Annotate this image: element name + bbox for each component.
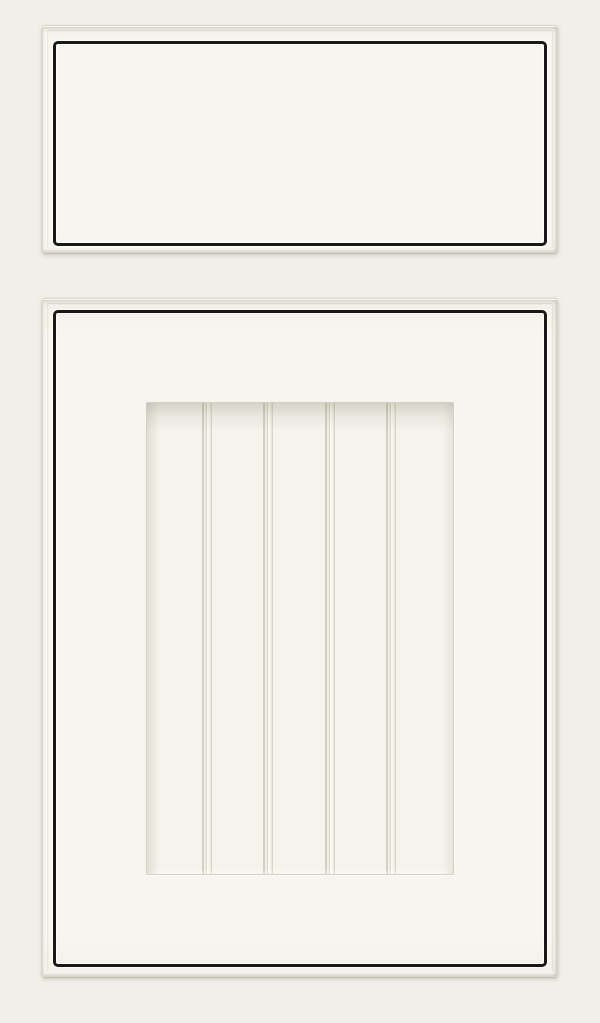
- beadboard-panel: [146, 402, 454, 875]
- drawer-front: [42, 25, 558, 253]
- beadboard-groove: [325, 403, 336, 874]
- cabinet-sample-photo: [0, 0, 600, 1023]
- drawer-bead-outline: [53, 41, 547, 246]
- drawer-bevel-edge: [47, 30, 553, 248]
- beadboard-groove: [263, 403, 274, 874]
- cabinet-door: [42, 298, 558, 977]
- beadboard-groove: [202, 403, 213, 874]
- panel-inner-shadow: [147, 403, 453, 874]
- beadboard-groove: [386, 403, 397, 874]
